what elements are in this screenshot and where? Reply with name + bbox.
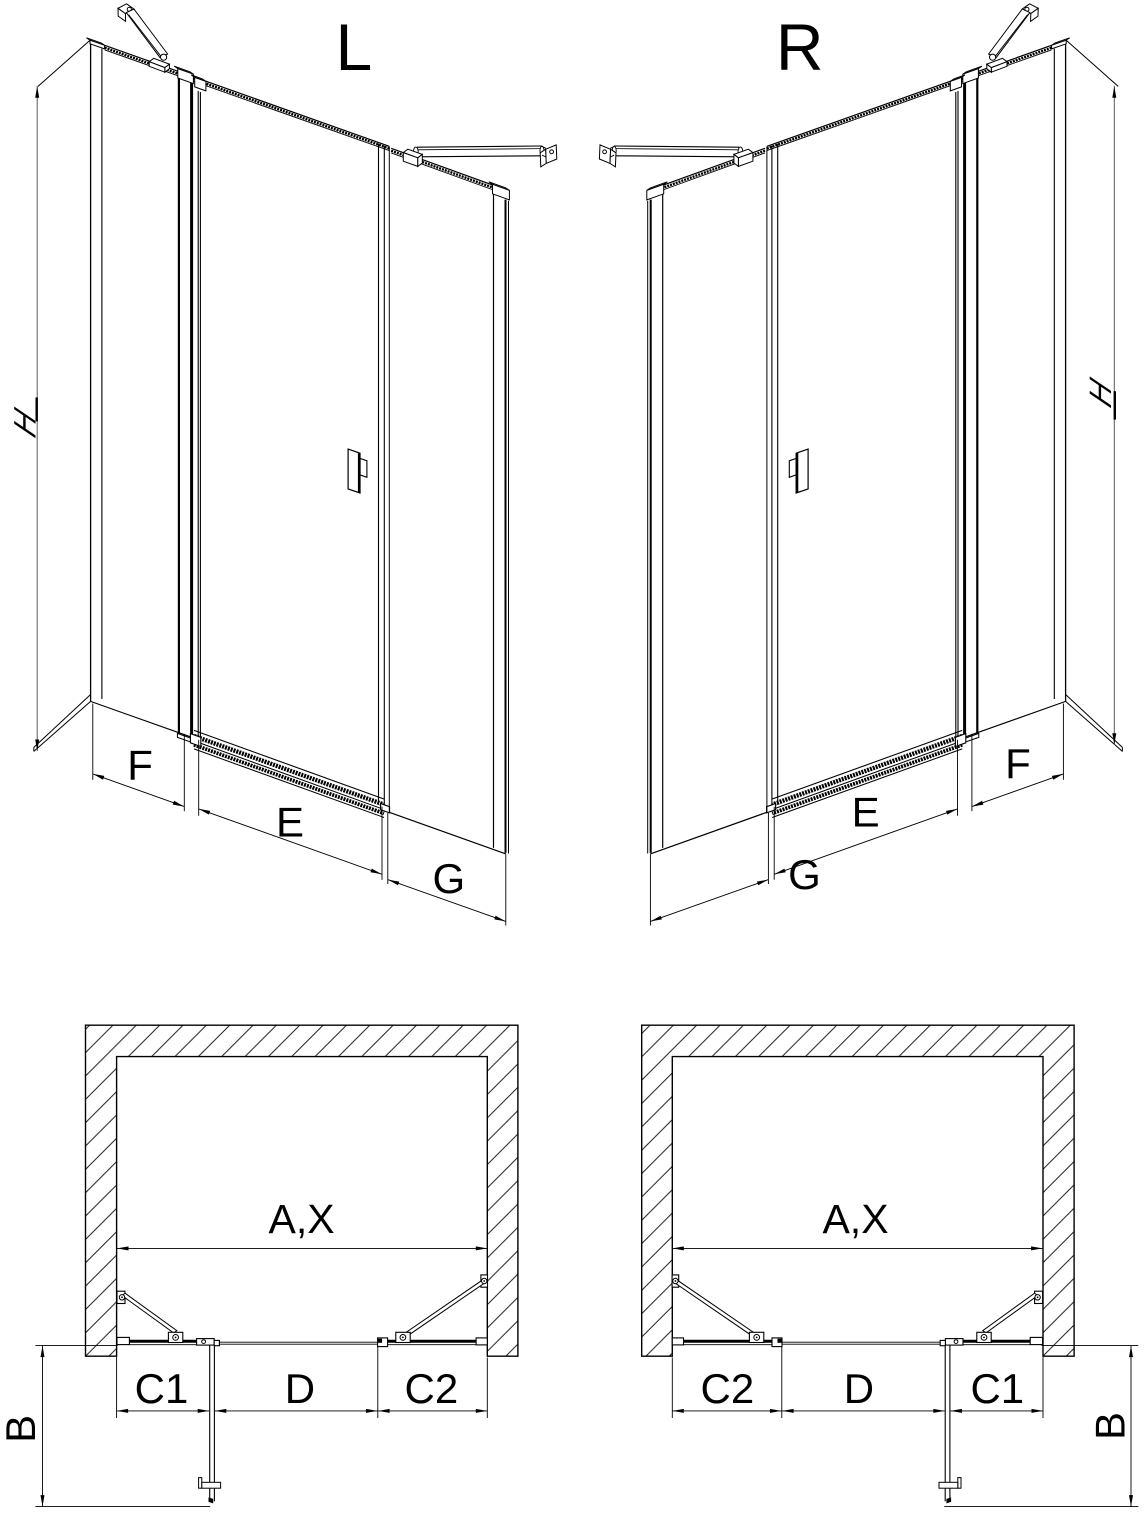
svg-text:E: E xyxy=(276,798,304,845)
svg-text:L: L xyxy=(335,10,372,84)
svg-text:R: R xyxy=(776,10,824,84)
svg-text:C1: C1 xyxy=(135,1365,189,1412)
svg-text:F: F xyxy=(1005,740,1031,787)
svg-text:B: B xyxy=(1087,1412,1134,1440)
svg-text:D: D xyxy=(844,1365,874,1412)
svg-text:E: E xyxy=(852,788,880,835)
svg-text:D: D xyxy=(285,1365,315,1412)
svg-text:F: F xyxy=(127,742,153,789)
svg-text:G: G xyxy=(788,851,821,898)
svg-text:A,X: A,X xyxy=(269,1196,335,1242)
svg-text:B: B xyxy=(0,1415,44,1443)
svg-text:G: G xyxy=(432,855,465,902)
svg-text:A,X: A,X xyxy=(822,1196,888,1242)
svg-text:C2: C2 xyxy=(701,1365,755,1412)
svg-text:C1: C1 xyxy=(970,1365,1024,1412)
svg-text:C2: C2 xyxy=(405,1365,459,1412)
